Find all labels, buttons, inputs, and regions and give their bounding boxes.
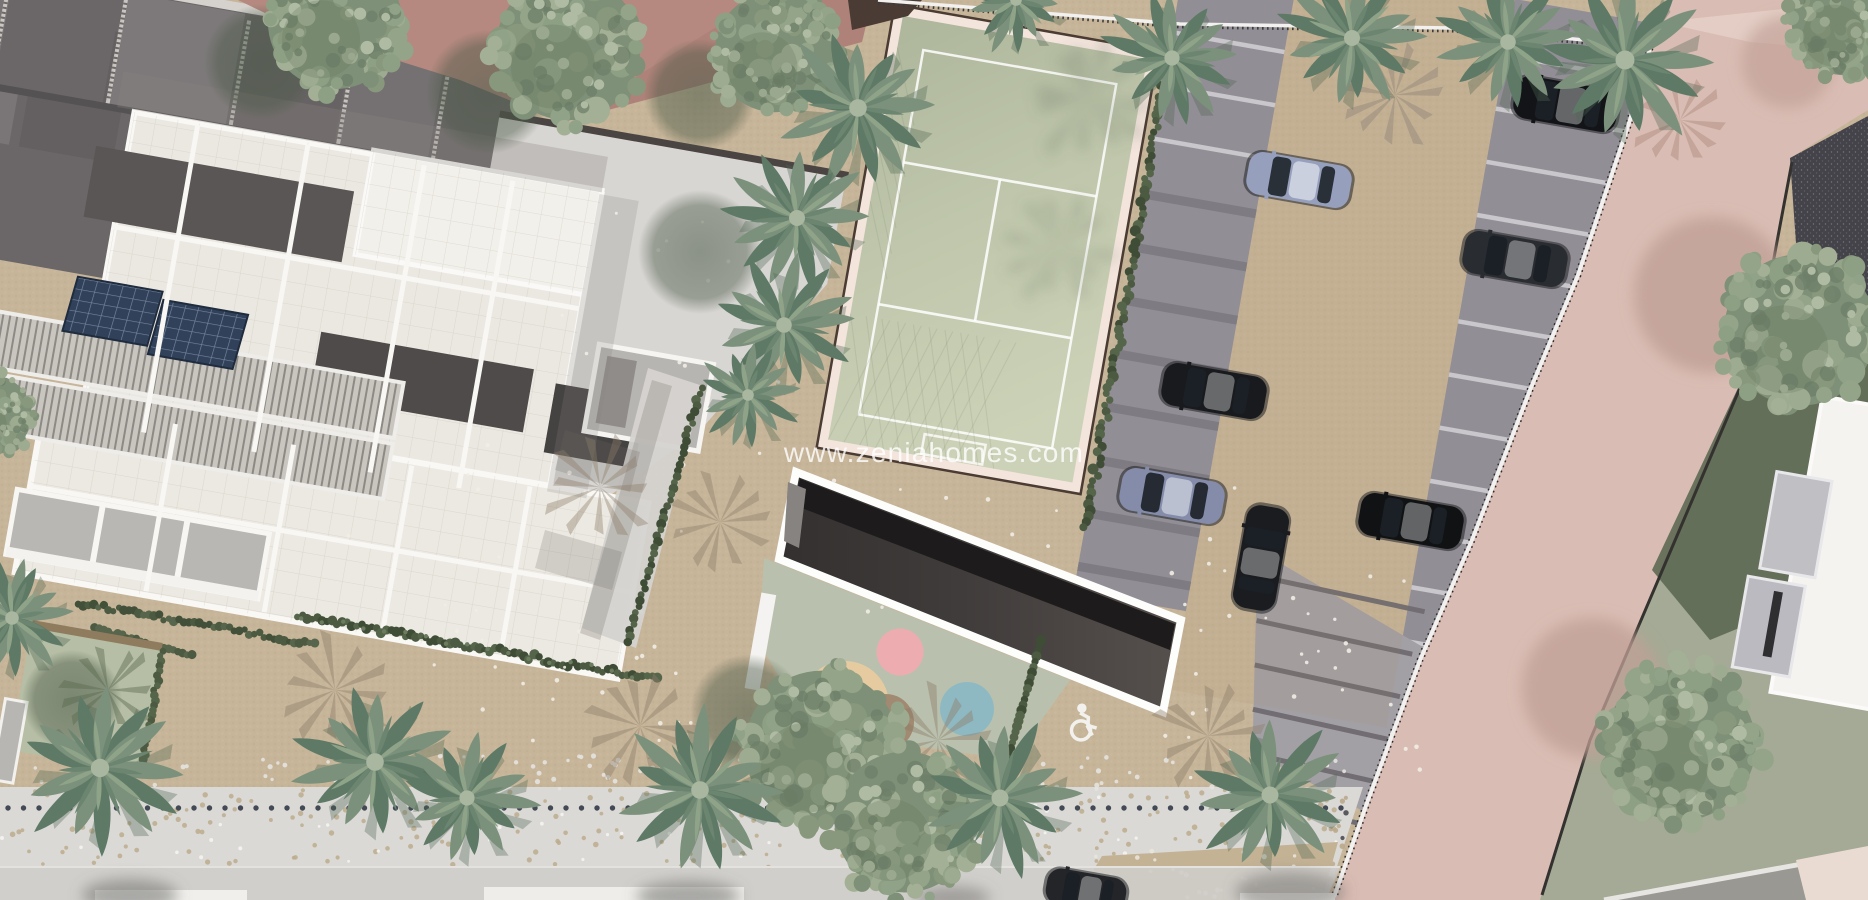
svg-text:www.zeniahomes.com: www.zeniahomes.com (783, 437, 1084, 468)
